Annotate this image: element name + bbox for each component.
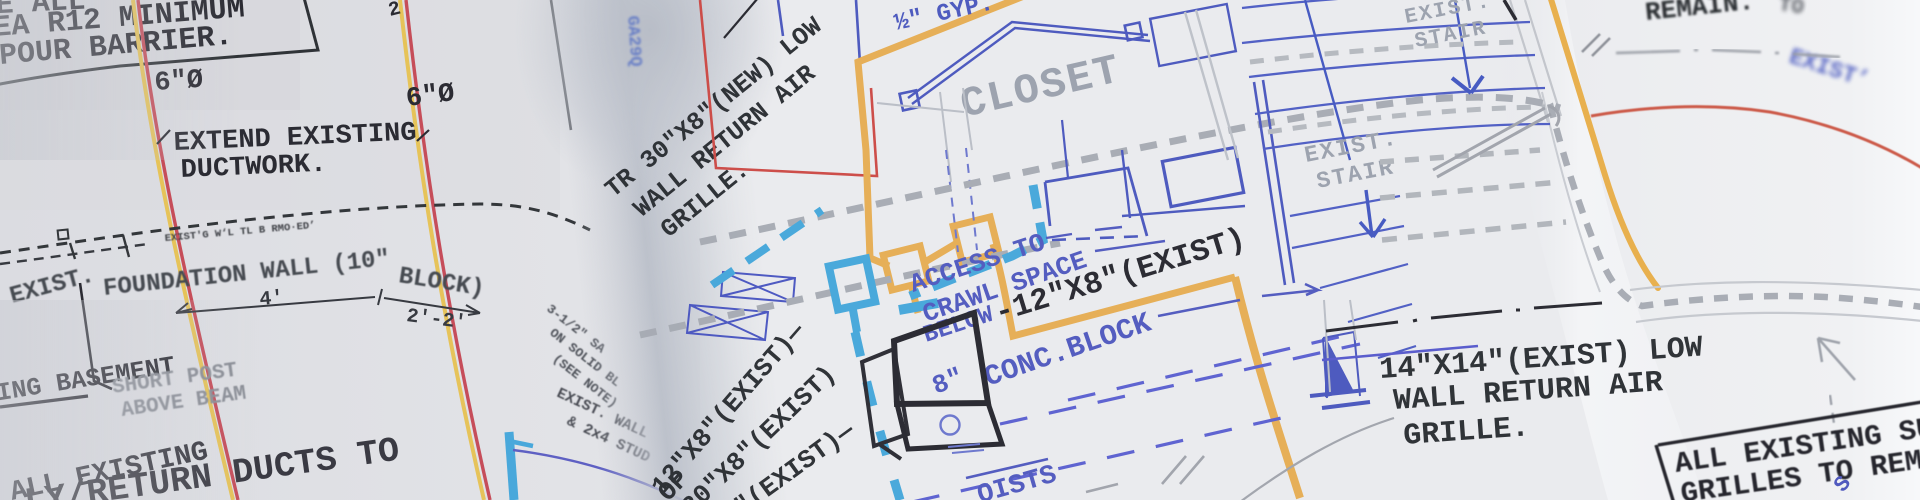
svg-text:TO: TO (1777, 0, 1805, 20)
svg-text:4': 4' (259, 287, 285, 312)
svg-text:6"Ø: 6"Ø (404, 79, 456, 115)
svg-text:GA29Q: GA29Q (622, 15, 645, 67)
